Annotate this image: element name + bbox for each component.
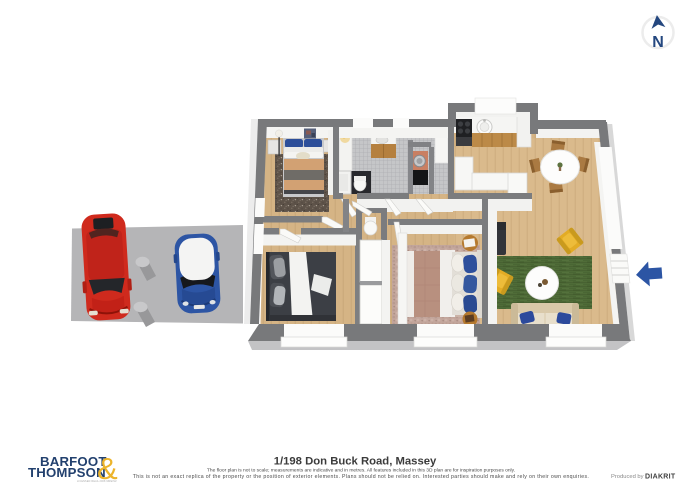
svg-text:DIAKRIT: DIAKRIT — [645, 474, 676, 481]
svg-text:Produced by: Produced by — [611, 474, 644, 480]
svg-text:1/198 Don Buck Road, Massey: 1/198 Don Buck Road, Massey — [274, 456, 437, 468]
svg-text:N: N — [652, 34, 664, 51]
svg-text:THOMPSON: THOMPSON — [28, 465, 106, 480]
svg-text:LICENSED REAA 2008 MREINZ: LICENSED REAA 2008 MREINZ — [77, 480, 117, 483]
svg-text:This is not an exact replica o: This is not an exact replica of the prop… — [133, 474, 589, 480]
svg-text:The floor plan is not to scale: The floor plan is not to scale; measurem… — [207, 468, 515, 474]
